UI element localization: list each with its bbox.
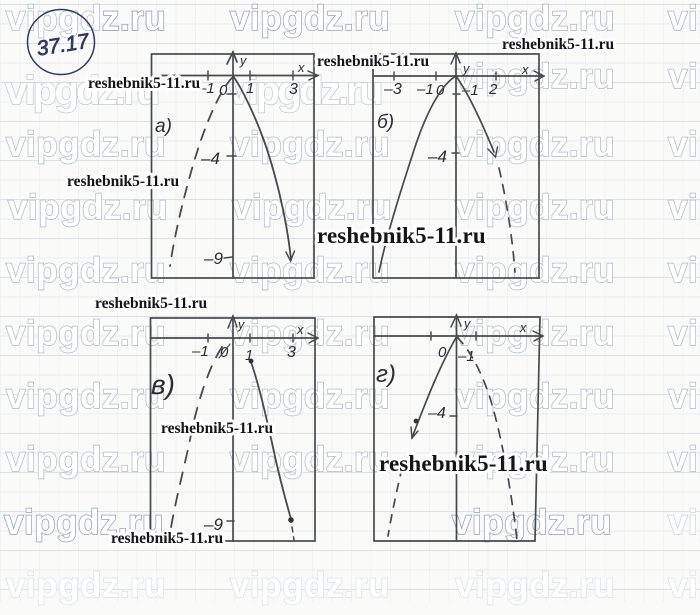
svg-text:vipgdz.ru: vipgdz.ru [8,188,168,227]
svg-text:vipgdz.ru: vipgdz.ru [6,566,166,605]
svg-text:vipgdz.ru: vipgdz.ru [452,503,612,542]
svg-text:vipgdz.ru: vipgdz.ru [455,188,615,227]
svg-text:–1: –1 [191,343,209,360]
svg-text:vipgdz.ru: vipgdz.ru [455,377,615,416]
svg-text:vipgdz.ru: vipgdz.ru [668,0,700,38]
svg-text:reshebnik5-11.ru: reshebnik5-11.ru [88,75,200,92]
svg-text:vipgdz.ru: vipgdz.ru [668,440,700,479]
svg-text:vipgdz.ru: vipgdz.ru [6,440,166,479]
svg-text:vipgdz.ru: vipgdz.ru [668,188,700,227]
svg-text:vipgdz.ru: vipgdz.ru [668,314,700,353]
svg-text:–1: –1 [416,81,434,98]
svg-text:reshebnik5-11.ru: reshebnik5-11.ru [502,36,614,53]
svg-text:vipgdz.ru: vipgdz.ru [668,377,700,416]
svg-text:–4: –4 [427,405,446,422]
svg-text:vipgdz.ru: vipgdz.ru [6,125,166,164]
svg-text:vipgdz.ru: vipgdz.ru [668,57,700,96]
svg-text:б): б) [377,112,394,133]
svg-text:vipgdz.ru: vipgdz.ru [230,377,390,416]
svg-text:vipgdz.ru: vipgdz.ru [230,440,390,479]
svg-text:reshebnik5-11.ru: reshebnik5-11.ru [161,420,273,437]
svg-text:г): г) [376,361,396,388]
svg-text:в): в) [151,369,175,400]
svg-text:3: 3 [287,344,296,361]
svg-text:у: у [462,62,470,76]
svg-text:z.ru: z.ru [102,0,166,38]
svg-text:у: у [463,317,471,331]
svg-text:vipgdz.ru: vipgdz.ru [455,251,615,290]
svg-text:vipgdz.ru: vipgdz.ru [455,566,615,605]
svg-text:x: x [521,62,529,77]
svg-text:1: 1 [246,80,254,97]
svg-text:–3: –3 [383,81,402,98]
svg-text:vipgdz.ru: vipgdz.ru [6,251,166,290]
svg-text:vipgdz.ru: vipgdz.ru [230,125,390,164]
svg-text:vipgdz.ru: vipgdz.ru [455,125,615,164]
svg-text:а): а) [155,116,172,137]
svg-text:3: 3 [289,81,298,98]
svg-text:–4: –4 [200,149,220,168]
svg-text:vipgdz.ru: vipgdz.ru [668,251,700,290]
svg-text:x: x [519,320,527,335]
svg-text:vipgdz.ru: vipgdz.ru [230,566,390,605]
svg-text:reshebnik5-11.ru: reshebnik5-11.ru [317,223,486,248]
svg-text:2: 2 [488,81,498,98]
svg-text:reshebnik5-11.ru: reshebnik5-11.ru [111,530,223,547]
svg-text:vipgdz.ru: vipgdz.ru [230,251,390,290]
svg-text:–4: –4 [427,147,447,166]
svg-text:vipgdz.ru: vipgdz.ru [455,314,615,353]
svg-text:vipgdz.ru: vipgdz.ru [455,0,615,38]
svg-text:vipgdz.ru: vipgdz.ru [230,0,390,38]
svg-text:vipgdz.ru: vipgdz.ru [668,566,700,605]
svg-text:reshebnik5-11.ru: reshebnik5-11.ru [379,451,548,476]
svg-text:vipgdz.ru: vipgdz.ru [232,188,392,227]
svg-text:у: у [239,54,247,68]
svg-text:у: у [237,318,245,332]
svg-text:reshebnik5-11.ru: reshebnik5-11.ru [95,295,207,312]
svg-text:–1: –1 [461,82,479,99]
svg-text:vipgdz.ru: vipgdz.ru [6,314,166,353]
svg-text:vipgdz.ru: vipgdz.ru [668,503,700,542]
svg-text:x: x [296,322,304,337]
svg-text:reshebnik5-11.ru: reshebnik5-11.ru [317,53,429,70]
svg-text:x: x [297,60,305,75]
svg-text:reshebnik5-11.ru: reshebnik5-11.ru [67,173,179,190]
svg-text:vipgdz.ru: vipgdz.ru [6,377,166,416]
svg-text:vipgdz.ru: vipgdz.ru [668,125,700,164]
svg-text:–9: –9 [203,249,223,268]
